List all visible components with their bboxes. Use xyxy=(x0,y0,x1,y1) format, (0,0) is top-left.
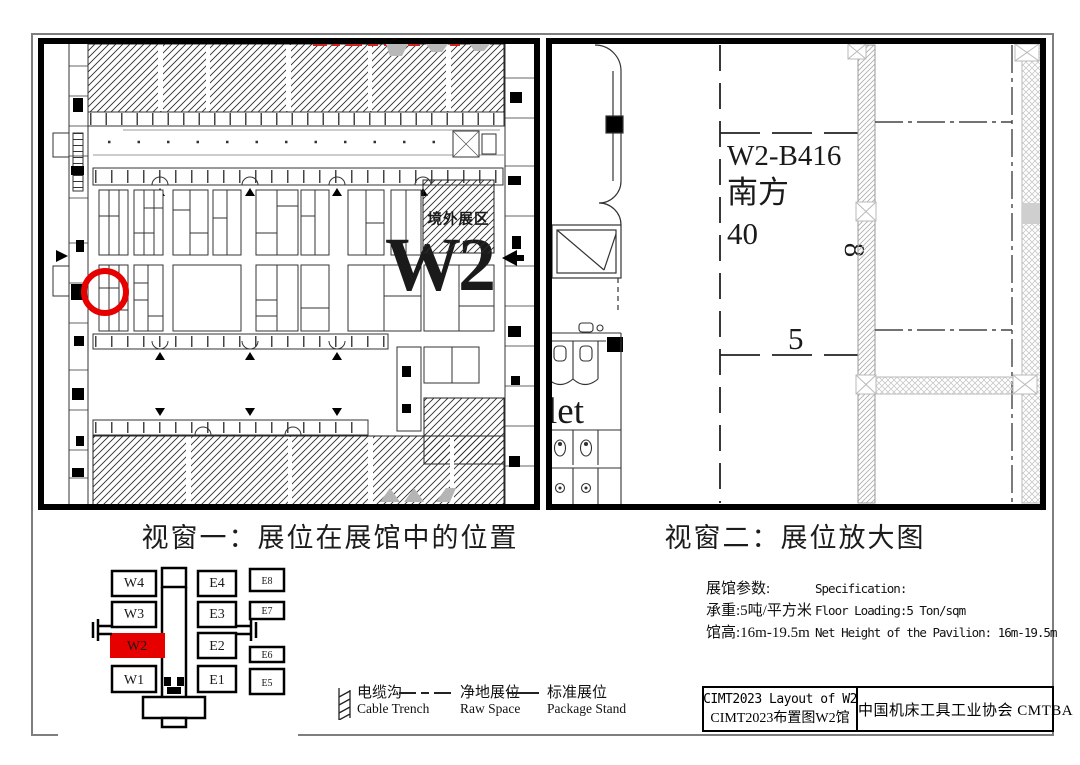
spec-header-row: 展馆参数: Specification: xyxy=(706,577,1056,599)
booth-id-label: W2-B416 xyxy=(727,140,841,172)
window2-caption: 视窗二：展位放大图 xyxy=(600,516,990,555)
drawing-title-zh: CIMT2023布置图W2馆 xyxy=(710,707,849,727)
exhibitor-name-label: 南方 xyxy=(727,175,789,210)
spec-en: Floor Loading:5 Ton/sqm xyxy=(815,603,965,618)
legend-en: Cable Trench xyxy=(357,702,429,716)
booth-enlargement-drawing: let W2-B416 南方 40 8 5 xyxy=(546,38,1046,510)
minimap-label-w1: W1 xyxy=(124,673,144,688)
minimap-label-e4: E4 xyxy=(209,576,225,591)
organization-name: 中国机床工具工业协会 CMTBA xyxy=(858,699,1073,720)
title-block: CIMT2023 Layout of W2 CIMT2023布置图W2馆 中国机… xyxy=(702,686,1054,732)
legend-zh: 标准展位 xyxy=(547,686,626,702)
minimap-label-e2: E2 xyxy=(209,639,225,654)
legend-item-package-stand: 标准展位 Package Stand xyxy=(547,686,626,716)
title-block-organization: 中国机床工具工业协会 CMTBA xyxy=(858,688,1073,730)
booth-grid-row-a xyxy=(99,190,421,255)
title-block-drawing-title: CIMT2023 Layout of W2 CIMT2023布置图W2馆 xyxy=(704,688,858,730)
north-hatched-band xyxy=(88,44,504,126)
minimap-label-e5: E5 xyxy=(261,678,272,689)
spec-row-loading: 承重:5吨/平方米 Floor Loading:5 Ton/sqm xyxy=(706,599,1056,621)
minimap-label-w2: W2 xyxy=(127,639,147,654)
minimap-label-e3: E3 xyxy=(209,607,225,622)
cable-trench-icon xyxy=(337,688,353,720)
booth-area-label: 40 xyxy=(727,216,758,251)
minimap-label-e8: E8 xyxy=(261,576,272,587)
spec-zh-header: 展馆参数: xyxy=(706,577,815,598)
drawing-title-en: CIMT2023 Layout of W2 xyxy=(703,692,857,707)
legend-en: Package Stand xyxy=(547,702,626,716)
spec-zh: 承重:5吨/平方米 xyxy=(706,599,815,620)
package-stand-line-icon xyxy=(506,689,540,697)
spec-row-height: 馆高:16m-19.5m Net Height of the Pavilion:… xyxy=(706,621,1056,643)
legend-en: Raw Space xyxy=(460,702,520,716)
spec-en: Net Height of the Pavilion: 16m-19.5m xyxy=(815,625,1056,640)
raw-space-line-icon xyxy=(398,689,456,697)
hall-overview-drawing: W2 境外展区 xyxy=(38,38,540,510)
pavilion-specs: 展馆参数: Specification: 承重:5吨/平方米 Floor Loa… xyxy=(706,577,1056,643)
column-marker xyxy=(606,116,623,133)
minimap-label-e7: E7 xyxy=(261,606,272,617)
drawing-sheet: W2 境外展区 xyxy=(0,0,1080,765)
site-minimap: W4 W3 W2 W1 E4 E3 E2 E1 E8 E7 E6 E5 xyxy=(58,556,298,736)
toilet-label: let xyxy=(547,391,585,432)
minimap-label-e1: E1 xyxy=(209,673,225,688)
window1-caption: 视窗一：展位在展馆中的位置 xyxy=(70,516,590,555)
booth-depth-dimension: 5 xyxy=(788,321,804,356)
minimap-label-e6: E6 xyxy=(261,650,272,661)
overseas-exhibition-area: 境外展区 xyxy=(423,180,494,253)
minimap-label-w3: W3 xyxy=(124,607,144,622)
column-marker xyxy=(1022,203,1043,224)
overseas-area-label: 境外展区 xyxy=(428,210,490,228)
south-hatched-band xyxy=(93,436,504,506)
booth-enlargement-panel: let W2-B416 南方 40 8 5 xyxy=(546,38,1046,510)
spec-zh: 馆高:16m-19.5m xyxy=(706,621,815,642)
spec-en-header: Specification: xyxy=(815,581,906,596)
minimap-label-w4: W4 xyxy=(124,576,144,591)
hall-overview-panel: W2 境外展区 xyxy=(38,38,540,510)
